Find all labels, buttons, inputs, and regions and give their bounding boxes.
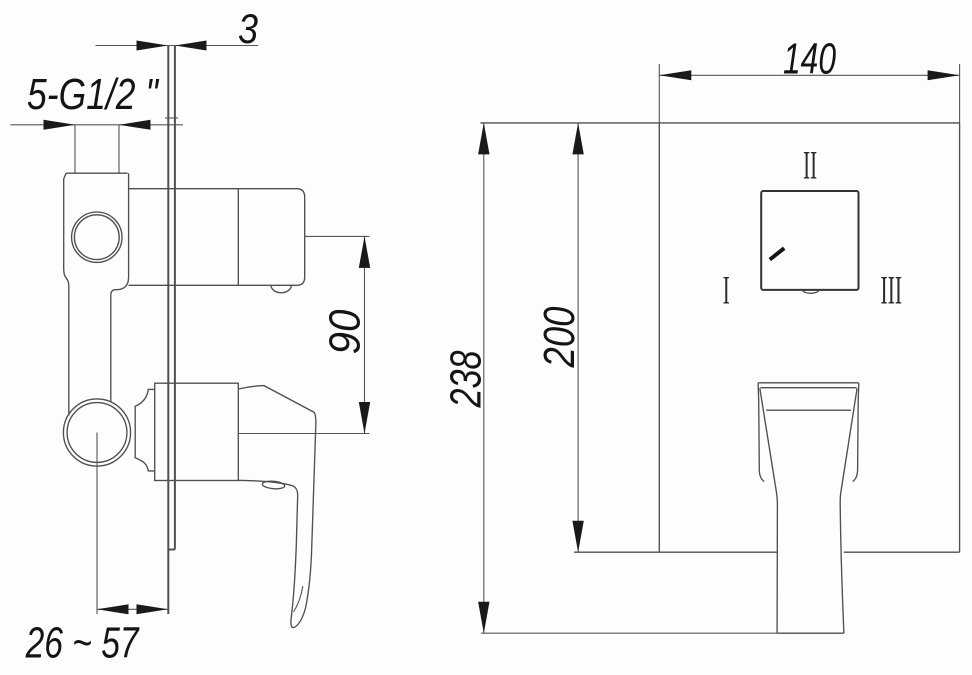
svg-text:II: II — [803, 142, 817, 187]
svg-text:III: III — [881, 268, 903, 313]
svg-text:140: 140 — [783, 35, 836, 84]
svg-text:90: 90 — [321, 309, 370, 354]
svg-text:200: 200 — [535, 306, 584, 368]
svg-text:I: I — [723, 268, 730, 313]
svg-text:26 ~ 57: 26 ~ 57 — [25, 619, 140, 668]
svg-text:3: 3 — [238, 5, 258, 52]
svg-text:238: 238 — [442, 350, 491, 408]
svg-text:5-G1/2 ": 5-G1/2 " — [27, 70, 160, 119]
